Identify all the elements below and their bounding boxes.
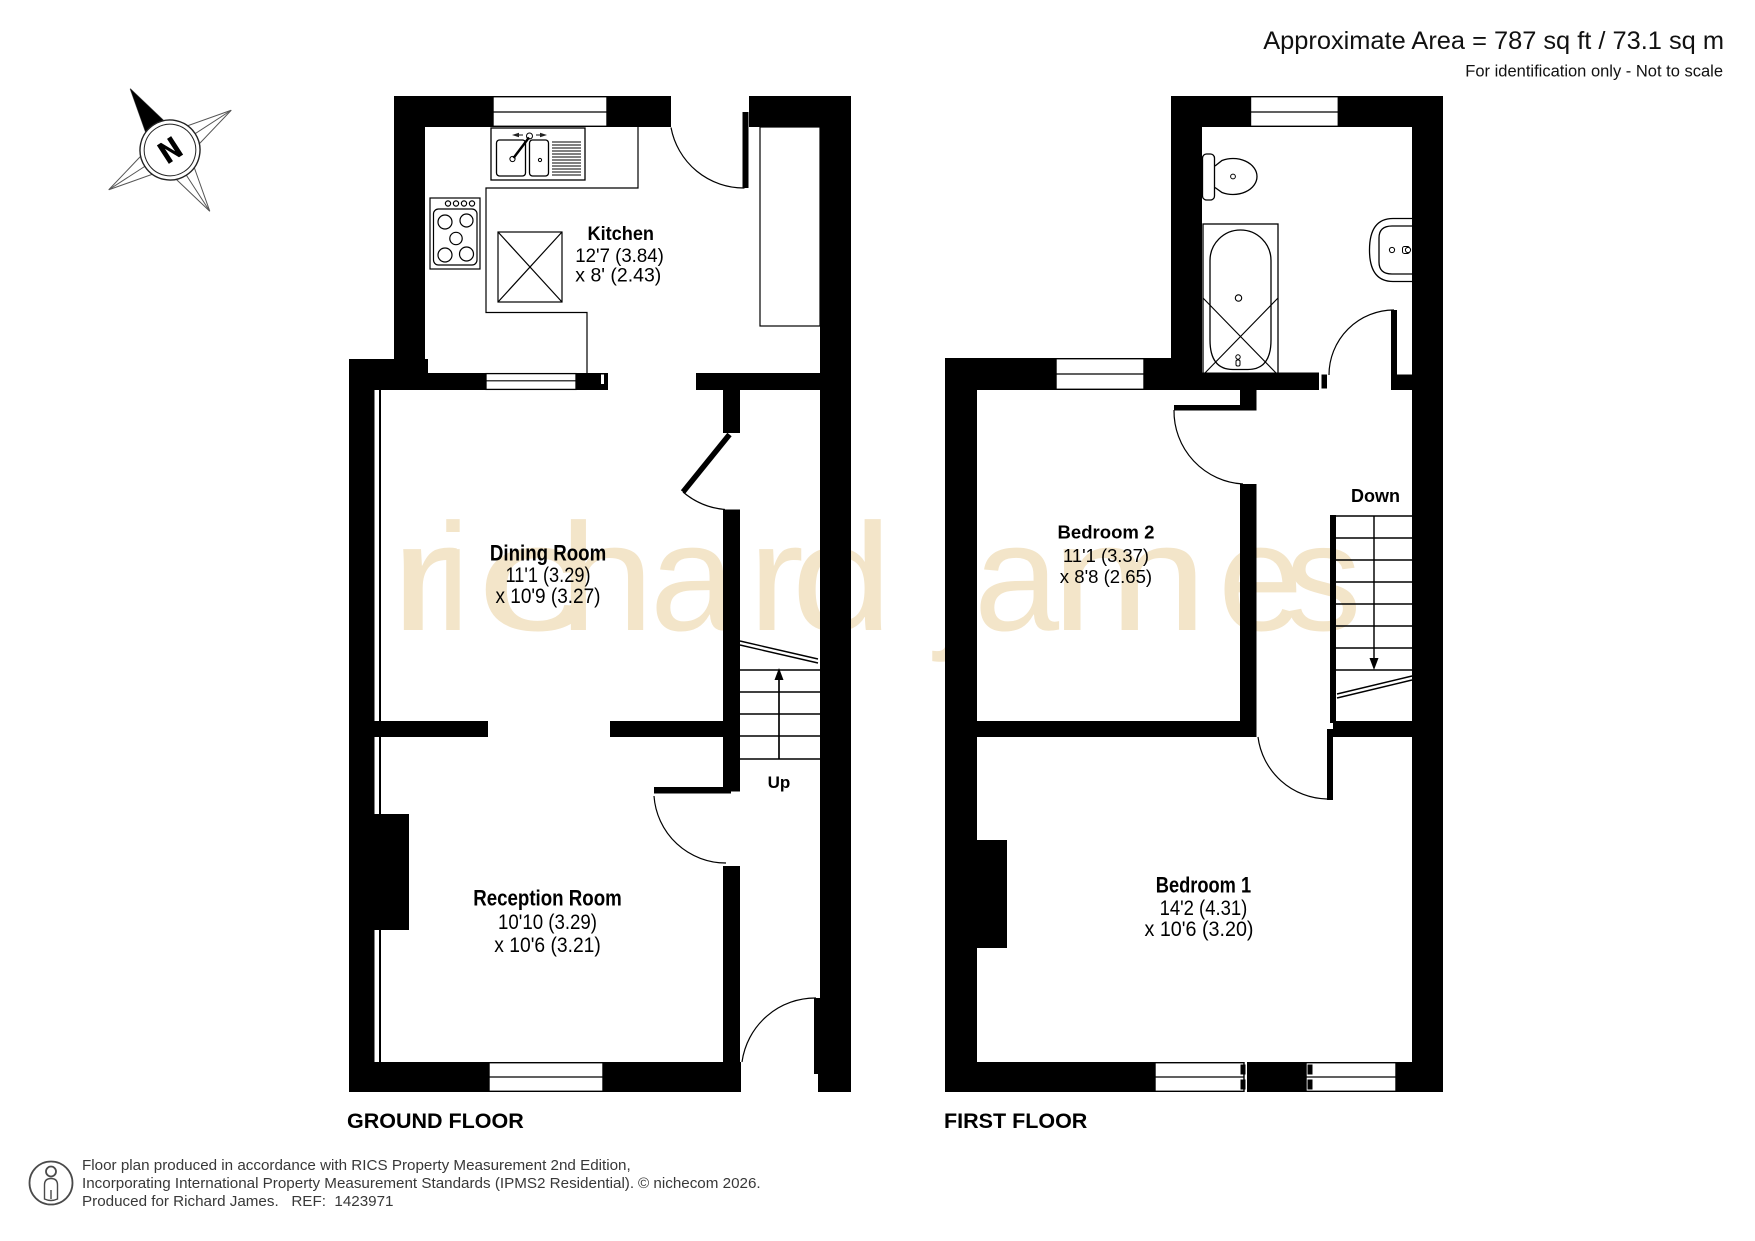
svg-text:12'7 (3.84): 12'7 (3.84) <box>575 246 664 267</box>
svg-text:Down: Down <box>1351 486 1400 506</box>
svg-text:x 10'9 (3.27): x 10'9 (3.27) <box>496 585 601 608</box>
svg-text:Bedroom 1: Bedroom 1 <box>1156 873 1251 898</box>
svg-text:Produced for Richard James.: Produced for Richard James. REF: 1423971 <box>82 1193 394 1210</box>
svg-text:11'1 (3.37): 11'1 (3.37) <box>1063 545 1149 566</box>
svg-text:x 8'8 (2.65): x 8'8 (2.65) <box>1060 566 1152 587</box>
svg-text:11'1 (3.29): 11'1 (3.29) <box>506 564 591 587</box>
svg-text:Dining Room: Dining Room <box>490 541 606 566</box>
svg-text:x 10'6 (3.20): x 10'6 (3.20) <box>1145 918 1254 941</box>
svg-text:GROUND FLOOR: GROUND FLOOR <box>347 1109 524 1133</box>
svg-text:a: a <box>974 492 1060 663</box>
svg-text:Up: Up <box>768 773 791 792</box>
svg-text:x 10'6 (3.21): x 10'6 (3.21) <box>494 934 601 957</box>
svg-text:10'10 (3.29): 10'10 (3.29) <box>498 911 597 934</box>
svg-text:Floor plan produced in accorda: Floor plan produced in accordance with R… <box>82 1157 631 1174</box>
svg-text:x 8' (2.43): x 8' (2.43) <box>575 266 661 287</box>
svg-text:i: i <box>436 492 470 663</box>
svg-text:For identification only - Not: For identification only - Not to scale <box>1465 63 1723 81</box>
svg-text:Reception Room: Reception Room <box>473 886 622 911</box>
svg-text:Kitchen: Kitchen <box>588 224 655 245</box>
svg-text:Bedroom 2: Bedroom 2 <box>1058 522 1155 543</box>
svg-text:Approximate Area = 787 sq ft /: Approximate Area = 787 sq ft / 73.1 sq m <box>1263 27 1724 55</box>
svg-text:Incorporating International Pr: Incorporating International Property Mea… <box>82 1175 634 1192</box>
svg-text:14'2 (4.31): 14'2 (4.31) <box>1160 897 1248 920</box>
svg-text:s: s <box>1285 492 1362 663</box>
svg-text:© nichecom 2026.: © nichecom 2026. <box>638 1175 761 1192</box>
svg-text:FIRST FLOOR: FIRST FLOOR <box>944 1109 1088 1133</box>
